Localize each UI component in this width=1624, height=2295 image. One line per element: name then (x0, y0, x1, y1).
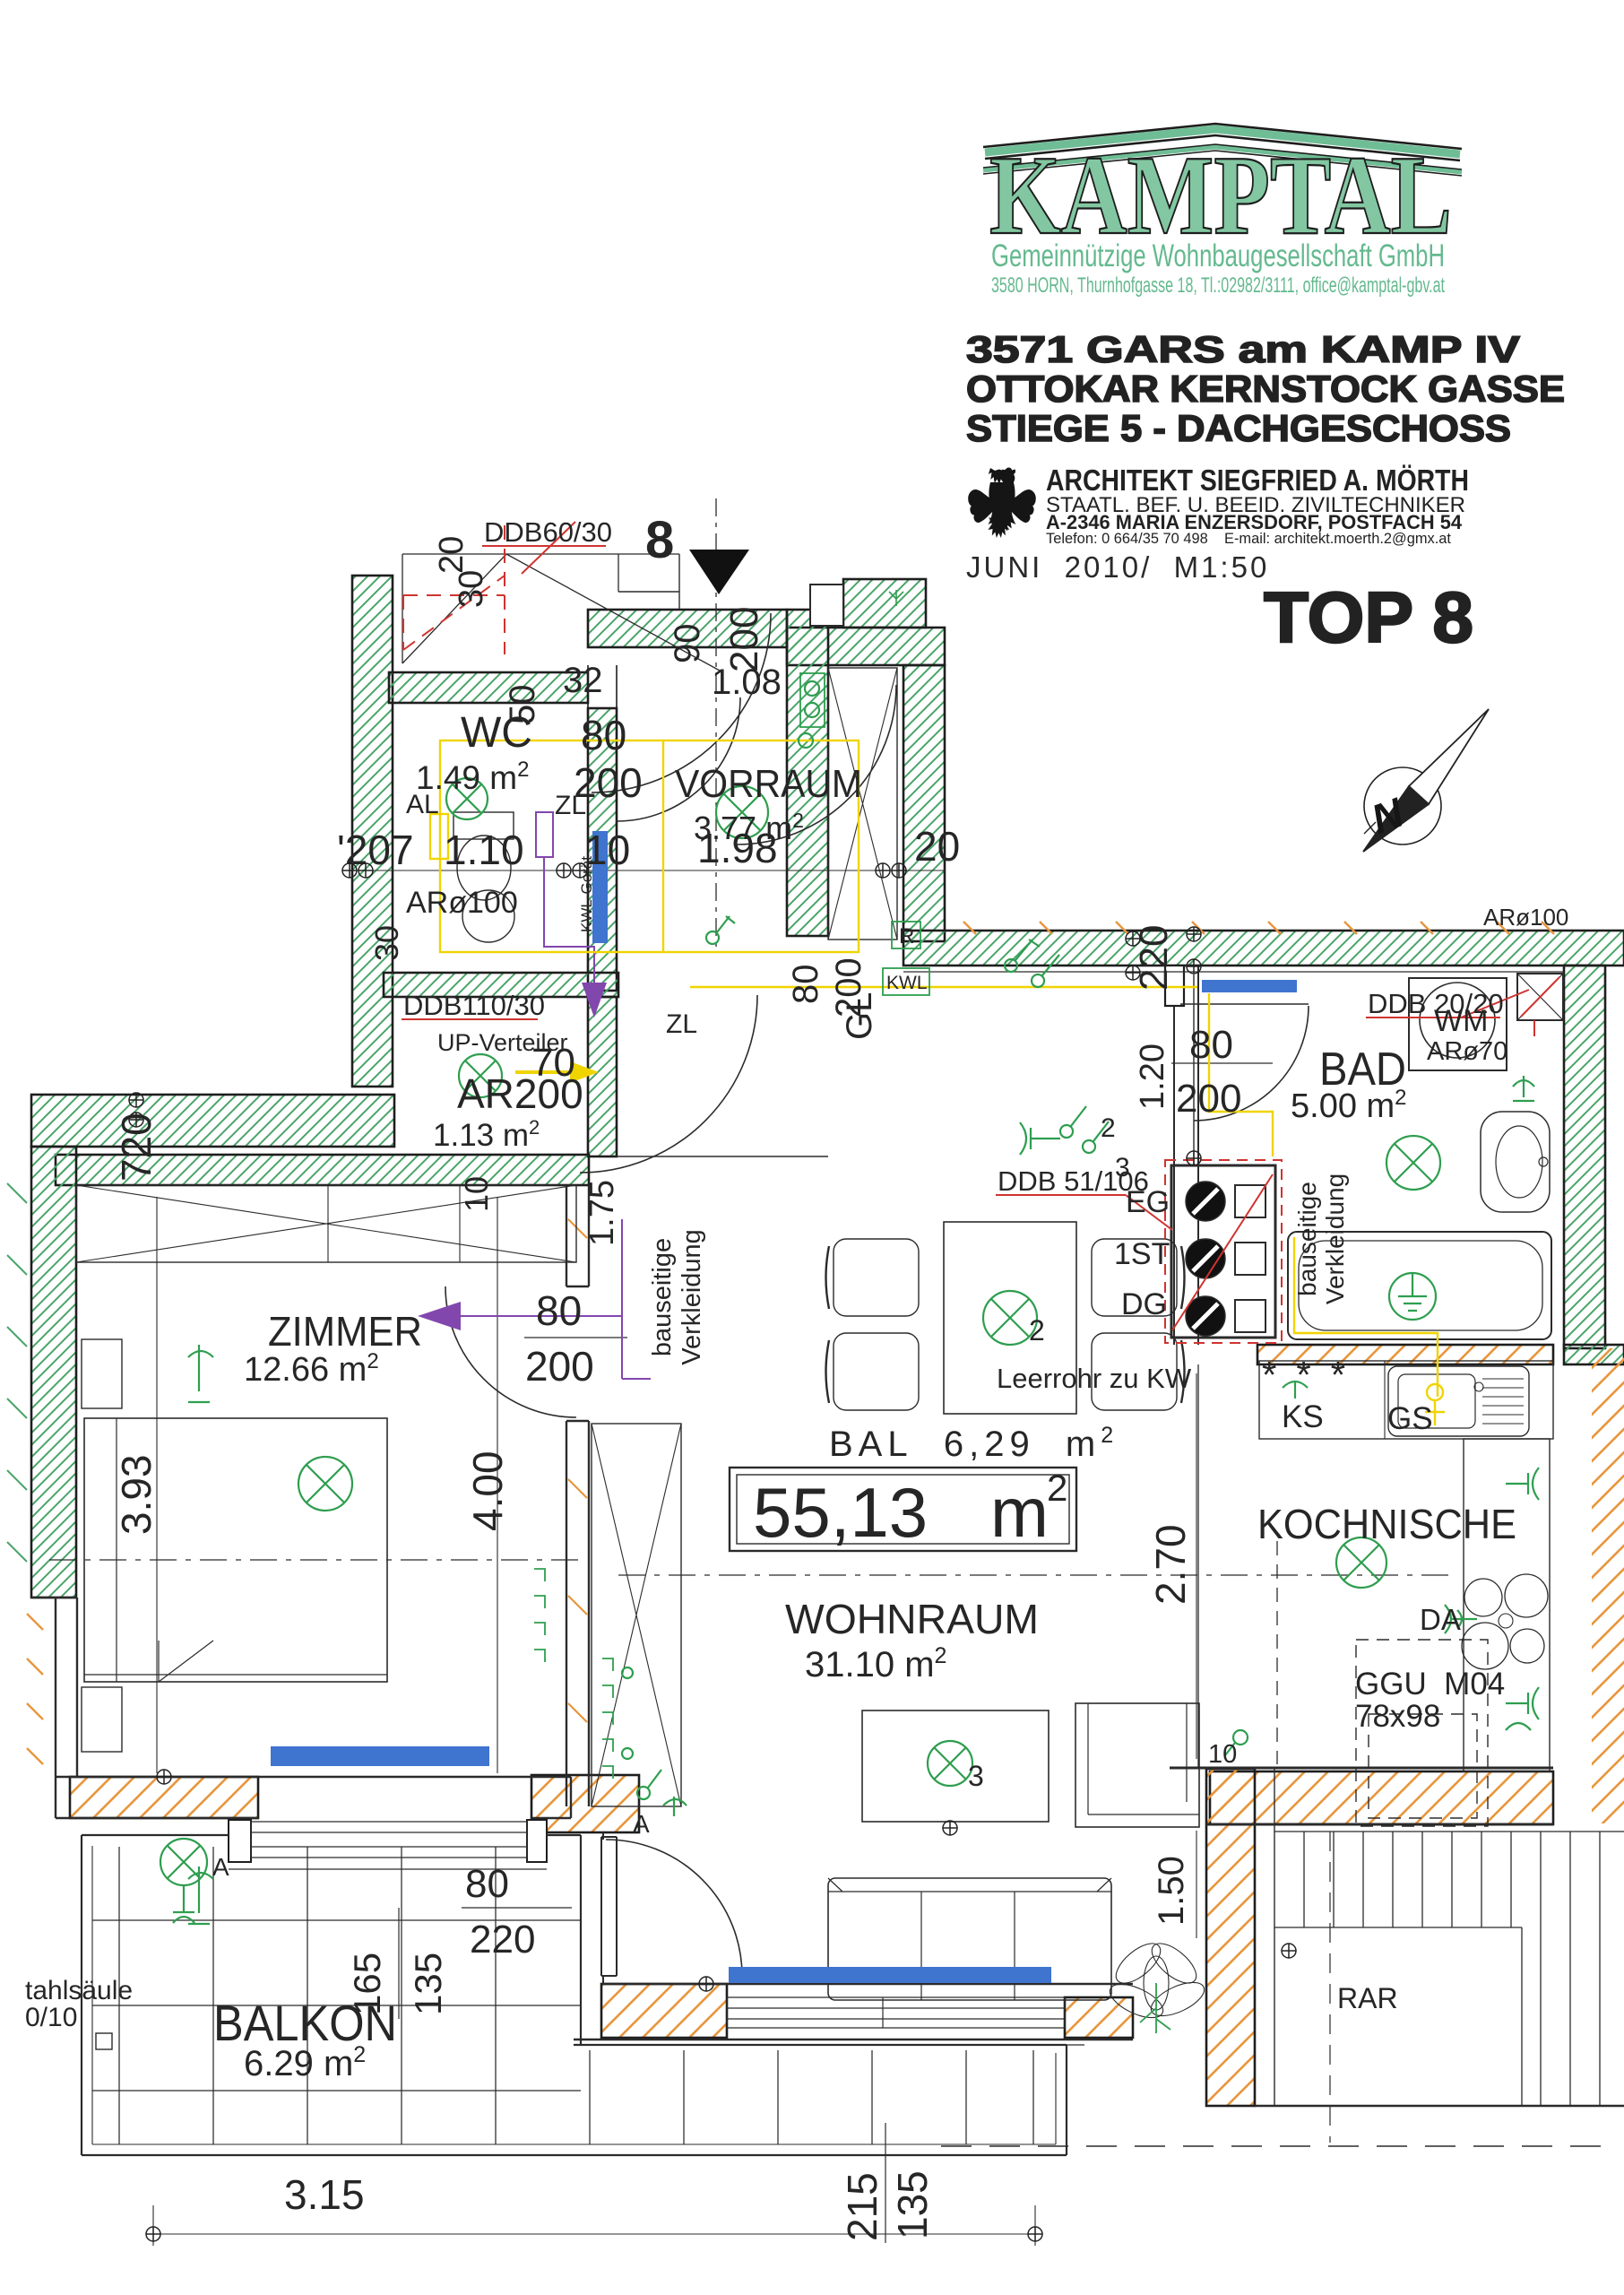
svg-text:Verkleidung: Verkleidung (678, 1229, 706, 1365)
svg-text:STIEGE 5 - DACHGESCHOSS: STIEGE 5 - DACHGESCHOSS (966, 407, 1511, 449)
svg-text:2: 2 (1101, 1113, 1116, 1143)
svg-text:2: 2 (1047, 1467, 1067, 1509)
svg-text:GGU M04: GGU M04 (1355, 1667, 1505, 1702)
svg-text:ZIMMER: ZIMMER (268, 1308, 422, 1355)
svg-text:3571 GARS am KAMP IV: 3571 GARS am KAMP IV (966, 328, 1520, 370)
svg-text:'207: '207 (337, 827, 414, 873)
svg-text:VORRAUM: VORRAUM (675, 762, 862, 806)
svg-text:30: 30 (453, 570, 490, 608)
svg-text:KWL: KWL (886, 973, 928, 993)
svg-text:DDB110/30: DDB110/30 (403, 990, 545, 1021)
svg-text:BAL 6,29 m2: BAL 6,29 m2 (829, 1423, 1119, 1464)
svg-text:1.20: 1.20 (1134, 1044, 1171, 1110)
svg-text:tahlsäule: tahlsäule (25, 1976, 133, 2005)
svg-text:***: *** (1262, 1354, 1365, 1396)
svg-text:80: 80 (581, 712, 626, 758)
svg-text:12.66 m2: 12.66 m2 (244, 1349, 379, 1389)
svg-text:80: 80 (536, 1287, 582, 1334)
svg-text:1.98: 1.98 (697, 825, 778, 871)
svg-text:30: 30 (368, 925, 405, 961)
svg-text:ARCHITEKT SIEGFRIED A. MÖRTH: ARCHITEKT SIEGFRIED A. MÖRTH (1046, 463, 1469, 497)
svg-text:4.00: 4.00 (464, 1451, 511, 1531)
svg-text:8: 8 (645, 511, 674, 569)
svg-text:bauseitige: bauseitige (648, 1238, 677, 1356)
svg-text:135: 135 (407, 1953, 449, 2015)
svg-text:165: 165 (346, 1953, 388, 2015)
svg-text:TOP 8: TOP 8 (1264, 577, 1473, 657)
svg-text:KS: KS (1282, 1399, 1324, 1434)
svg-text:200: 200 (525, 1343, 594, 1390)
svg-text:GS: GS (1387, 1401, 1433, 1436)
svg-text:3.15: 3.15 (284, 2171, 365, 2218)
svg-text:31.10 m2: 31.10 m2 (805, 1643, 946, 1684)
svg-text:5.00 m2: 5.00 m2 (1291, 1086, 1407, 1125)
svg-text:1.10: 1.10 (444, 827, 524, 873)
svg-text:bauseitige: bauseitige (1293, 1182, 1321, 1296)
svg-text:AR200: AR200 (457, 1070, 583, 1117)
svg-text:200: 200 (1176, 1077, 1241, 1121)
svg-text:ARø70: ARø70 (1427, 1037, 1507, 1066)
svg-text:80: 80 (465, 1862, 509, 1906)
svg-text:A: A (212, 1853, 229, 1881)
svg-text:Verkleidung: Verkleidung (1321, 1173, 1349, 1304)
svg-text:200: 200 (574, 759, 643, 806)
svg-text:20: 20 (433, 536, 471, 574)
svg-text:DA: DA (1420, 1603, 1461, 1636)
svg-text:A: A (633, 1810, 650, 1838)
svg-text:1.49 m2: 1.49 m2 (416, 758, 529, 796)
svg-text:3: 3 (968, 1760, 984, 1792)
svg-text:2: 2 (1029, 1314, 1045, 1347)
svg-text:1.08: 1.08 (712, 663, 782, 702)
svg-text:RAR: RAR (1337, 1982, 1398, 2014)
svg-text:ARø100: ARø100 (406, 886, 518, 920)
svg-text:Telefon: 0 664/35 70 498 E-: Telefon: 0 664/35 70 498 E-mail: archite… (1046, 530, 1451, 547)
svg-text:EG: EG (1126, 1185, 1170, 1219)
svg-text:6.29 m2: 6.29 m2 (244, 2042, 366, 2083)
svg-text:JUNI 2010/ M1:50: JUNI 2010/ M1:50 (966, 550, 1269, 584)
svg-text:DG: DG (1121, 1287, 1167, 1321)
svg-text:215: 215 (839, 2172, 885, 2241)
svg-text:200: 200 (829, 957, 868, 1018)
svg-text:10: 10 (1208, 1740, 1237, 1769)
svg-text:2.70: 2.70 (1147, 1524, 1194, 1605)
svg-text:55,13: 55,13 (753, 1473, 928, 1552)
svg-text:WM: WM (1434, 1004, 1488, 1038)
svg-text:20: 20 (914, 823, 960, 870)
svg-text:3580 HORN, Thurnhofgasse 18, T: 3580 HORN, Thurnhofgasse 18, Tl.:02982/3… (991, 273, 1445, 298)
svg-text:1.75: 1.75 (583, 1180, 621, 1246)
svg-text:220: 220 (470, 1918, 535, 1962)
svg-text:Leerrohr zu KW: Leerrohr zu KW (997, 1363, 1192, 1394)
svg-text:0/10: 0/10 (25, 2003, 77, 2032)
svg-text:3: 3 (1115, 1153, 1130, 1182)
svg-text:135: 135 (889, 2170, 936, 2239)
svg-text:KOCHNISCHE: KOCHNISCHE (1257, 1501, 1516, 1547)
svg-text:R: R (899, 924, 914, 948)
svg-text:m: m (990, 1473, 1049, 1552)
svg-text:10: 10 (458, 1176, 495, 1212)
svg-text:10: 10 (584, 827, 630, 873)
svg-text:1ST: 1ST (1114, 1237, 1170, 1271)
svg-text:78x98: 78x98 (1355, 1699, 1440, 1734)
svg-text:1.50: 1.50 (1152, 1856, 1191, 1926)
svg-text:80: 80 (786, 965, 825, 1005)
svg-text:ARø100: ARø100 (1483, 904, 1568, 931)
svg-text:1.13 m2: 1.13 m2 (433, 1116, 540, 1153)
svg-text:80: 80 (1189, 1023, 1233, 1067)
svg-text:Gemeinnützige Wohnbaugesellsch: Gemeinnützige Wohnbaugesellschaft GmbH (991, 238, 1445, 273)
svg-text:DDB60/30: DDB60/30 (484, 516, 612, 548)
svg-text:50: 50 (503, 685, 542, 725)
svg-text:32: 32 (563, 661, 603, 700)
svg-text:ZL: ZL (666, 1009, 697, 1039)
svg-text:OTTOKAR KERNSTOCK GASSE: OTTOKAR KERNSTOCK GASSE (966, 368, 1565, 410)
svg-text:90: 90 (668, 624, 707, 664)
svg-text:3.93: 3.93 (113, 1454, 160, 1535)
svg-text:WOHNRAUM: WOHNRAUM (785, 1596, 1039, 1642)
